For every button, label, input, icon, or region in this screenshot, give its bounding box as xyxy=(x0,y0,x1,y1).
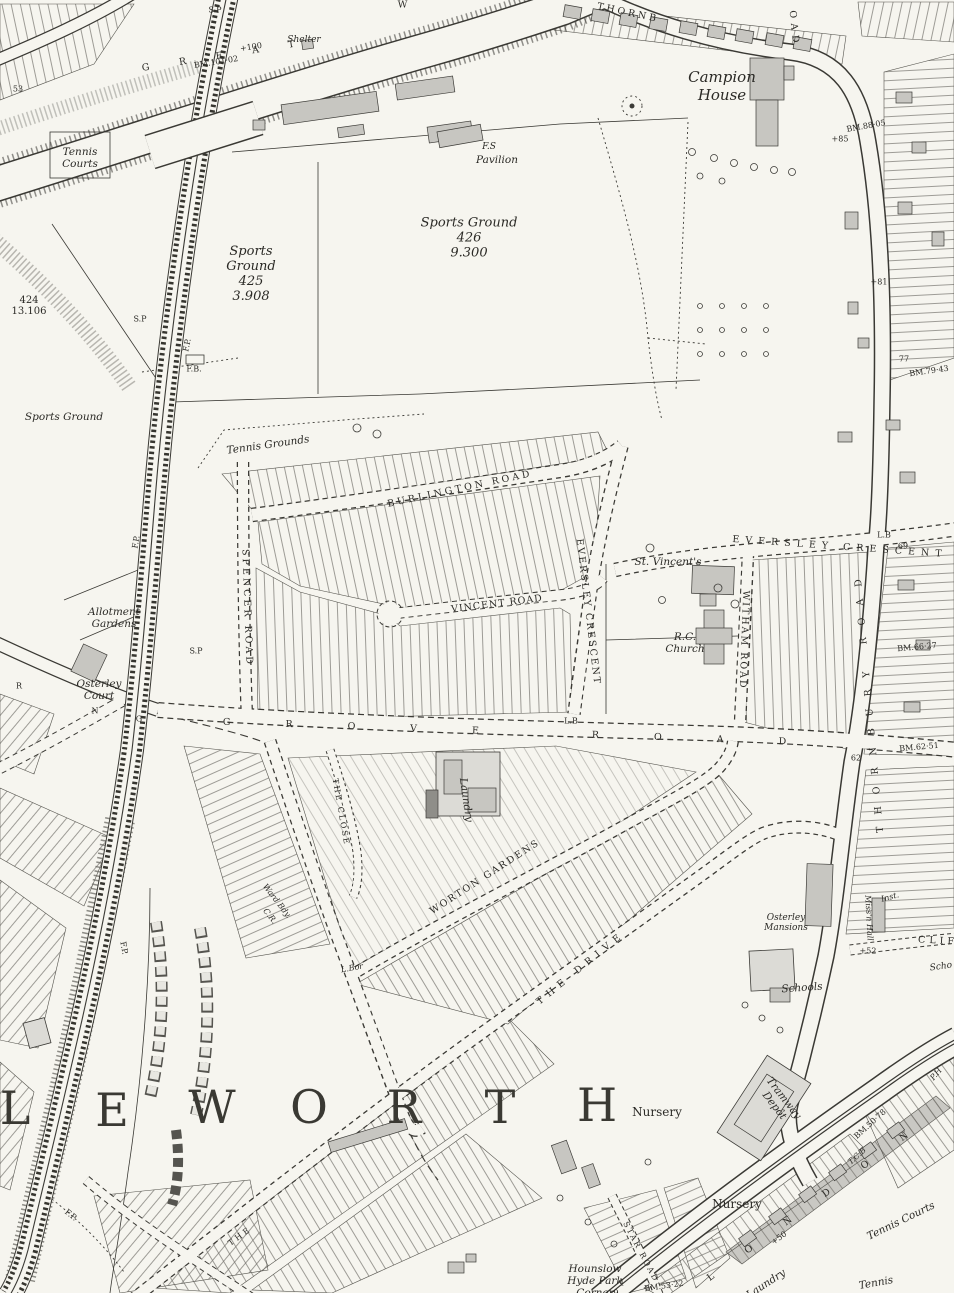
map-label-vincent-road: VINCENT ROAD xyxy=(451,593,544,615)
map-label-district-l: L xyxy=(0,1081,30,1135)
map-label-spot-52: +52 xyxy=(860,947,877,956)
map-label-ph: P.H xyxy=(928,1066,943,1082)
map-label-cr: C.R. xyxy=(261,907,279,926)
map-label-bm-88-05: BM.88·05 xyxy=(846,118,886,134)
map-label-allotment-gardens: Allotment Gardens xyxy=(88,606,140,630)
map-label-bm-79-43: BM.79·43 xyxy=(909,364,949,378)
map-label-laundry: Laundry xyxy=(457,777,475,823)
map-label-parcel-424: 424 13.106 xyxy=(12,295,47,317)
map-label-worton-gardens: WORTON GARDENS xyxy=(428,837,542,916)
map-label-great-west-road-w: W xyxy=(398,0,411,11)
map-label-tennis-courts-nw: Tennis Courts xyxy=(62,146,98,170)
map-label-spot-69: 69 xyxy=(898,542,908,551)
map-label-sp-grove: S.P xyxy=(189,647,202,656)
map-label-tennis-grounds: Tennis Grounds xyxy=(226,433,310,456)
map-label-sp-top: S.P xyxy=(208,6,221,15)
map-label-district-o: O xyxy=(290,1080,328,1134)
map-labels: S.PShelterGREATWBM.101·02+10053Tennis Co… xyxy=(0,0,954,1293)
map-label-rc-church: R.C. Church xyxy=(665,631,704,655)
map-label-eversley-crescent-e: EVERSLEY CRESCENT xyxy=(732,534,948,560)
map-label-spot-50: +50 xyxy=(770,1229,789,1246)
map-label-number-1: 1 xyxy=(619,1279,624,1288)
map-label-fp-sw: F.P. xyxy=(63,1207,79,1222)
map-label-number-9: 9 xyxy=(613,1289,618,1293)
map-label-tennis-courts-s: Tennis xyxy=(858,1274,894,1292)
map-label-hounslow-hyde-park-corner: Hounslow Hyde Park Corner xyxy=(567,1263,623,1293)
map-label-shelter: Shelter xyxy=(287,35,320,45)
map-label-grove-road: GROVE ROAD xyxy=(223,717,842,750)
map-label-spot-53: 53 xyxy=(13,85,23,94)
map-label-ward-bdy: Ward Bdy. xyxy=(261,882,293,920)
map-label-st-vincents: St. Vincent's xyxy=(635,556,702,568)
map-label-sports-ground-426: Sports Ground 426 9.300 xyxy=(421,216,518,261)
map-label-spot-62: 62 xyxy=(851,754,861,763)
map-label-nursery-s: Nursery xyxy=(712,1197,762,1211)
map-label-bm-101-02: BM.101·02 xyxy=(193,54,238,70)
map-label-district-h: H xyxy=(577,1078,617,1132)
map-label-inst: Inst. xyxy=(880,890,900,903)
map-label-star-road: STAR ROAD xyxy=(621,1220,661,1284)
map-label-bdy-letter-g: G xyxy=(136,715,142,724)
map-label-bm-53-22: BM.53·22 xyxy=(644,1279,684,1293)
map-label-great-west-road: GREAT xyxy=(141,34,325,74)
map-label-district-r: R xyxy=(387,1080,422,1134)
map-label-fp-rail: F.P. xyxy=(181,338,193,353)
map-label-campion-house: Campion House xyxy=(688,68,756,104)
map-label-spot-81: +81 xyxy=(871,278,888,287)
map-label-burlington-road: BURLINGTON ROAD xyxy=(386,468,533,510)
map-label-osterley-mansions: Osterley Mansions xyxy=(764,913,808,933)
map-label-the-close: THE CLOSE xyxy=(331,778,352,847)
map-label-fs: F.S xyxy=(482,142,496,152)
map-label-district-t: T xyxy=(485,1080,516,1134)
map-label-school-e: Scho xyxy=(929,960,953,973)
map-label-tennis-courts-se: Tennis Courts xyxy=(865,1199,937,1242)
map-label-the-drive-sw: THE xyxy=(226,1224,253,1247)
map-label-bm-66-27: BM.66·27 xyxy=(897,641,937,653)
map-label-sports-ground-w: Sports Ground xyxy=(25,411,103,423)
map-label-district-w: W xyxy=(188,1080,235,1134)
map-label-laundry-s: Laundry xyxy=(744,1267,788,1293)
map-label-clifton-road: CLIF xyxy=(918,934,954,947)
map-label-fb-rail: F.B. xyxy=(186,365,201,374)
os-map-isleworth: S.PShelterGREATWBM.101·02+10053Tennis Co… xyxy=(0,0,954,1293)
map-label-spot-77: 77 xyxy=(899,355,909,364)
map-label-nursery-n: Nursery xyxy=(632,1105,682,1119)
map-label-bdy-letter-r: R xyxy=(16,682,22,691)
map-label-bm-62-51: BM.62·51 xyxy=(899,741,939,753)
map-label-osterley-court: Osterley Court xyxy=(77,678,122,702)
map-label-missn-hall: Miss'n Hall xyxy=(863,895,874,941)
map-label-tcb: T.C.B xyxy=(846,1146,868,1167)
map-label-spot-85: +85 xyxy=(832,135,849,144)
map-label-spot-100: +100 xyxy=(239,41,262,53)
map-label-schools: Schools xyxy=(781,981,823,996)
map-label-fp-w: F.P. xyxy=(118,941,129,956)
map-label-bm-50-78: BM.50·78 xyxy=(852,1107,887,1140)
map-label-lb-crescent: L.B xyxy=(877,531,891,540)
map-label-fp-rail-2: F.P. xyxy=(130,535,141,550)
map-label-pavilion: Pavilion xyxy=(476,154,518,166)
map-label-lb-grove: L.B xyxy=(564,717,578,726)
map-label-sp-rail: S.P xyxy=(133,315,146,324)
map-label-the-drive: THE DRIVE xyxy=(534,929,627,1007)
map-label-tramway-depot: Tramway Depôt xyxy=(754,1075,803,1129)
map-label-spencer-road: SPENCER ROAD xyxy=(239,549,254,667)
map-label-sports-ground-425: Sports Ground 425 3.908 xyxy=(226,244,276,304)
map-label-london-road: LONDON xyxy=(705,1106,943,1283)
map-label-thornbury-road-top: THORNB xyxy=(596,1,660,25)
map-label-l-bor: L.Bor xyxy=(340,962,364,975)
map-label-thornbury-road: THORNBURY ROAD xyxy=(852,567,886,833)
map-label-eversley-crescent-w: EVERSLEY CRESCENT xyxy=(574,538,603,686)
map-label-thornbury-road-oad: OAD xyxy=(787,10,802,48)
map-label-bdy-letter-n: N xyxy=(92,707,99,716)
map-label-witham-road: WITHAM ROAD xyxy=(737,590,751,689)
map-label-district-e: E xyxy=(95,1083,129,1137)
